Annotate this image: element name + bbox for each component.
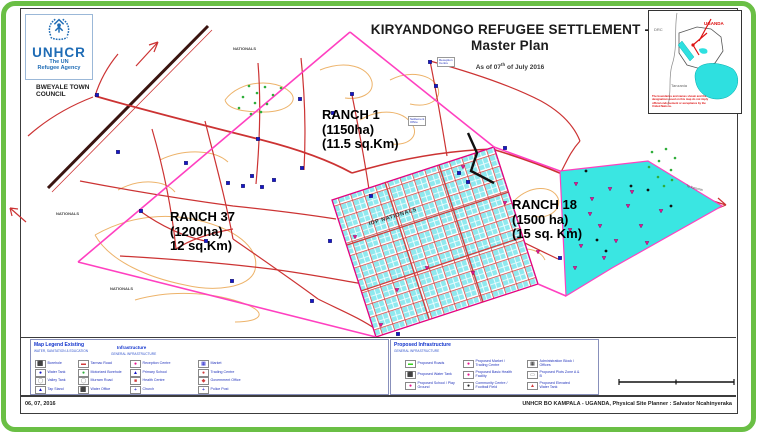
legend-existing-subtitle: Infrastructure bbox=[117, 345, 146, 350]
legend-symbol-icon: ● bbox=[130, 360, 141, 368]
inset-disclaimer: The boundaries and names shown and the d… bbox=[652, 95, 738, 108]
legend-symbol-icon: ▬ bbox=[78, 360, 89, 368]
legend-existing-subtitle-note: GENERAL INFRASTRUCTURE bbox=[111, 352, 156, 356]
footer-date: 06, 07, 2016 bbox=[25, 401, 56, 407]
ranch37-name: RANCH 37 bbox=[170, 210, 235, 225]
legend-item: ●Community Centre / Football Field bbox=[463, 382, 516, 390]
map-title-line2: Master Plan bbox=[370, 38, 650, 54]
legend-item-label: Health Centre bbox=[143, 379, 165, 383]
legend-item-label: Church bbox=[143, 388, 155, 392]
ranch37-area-km: 12 sq.Km) bbox=[170, 239, 235, 254]
legend-symbol-icon: + bbox=[198, 386, 209, 394]
legend-symbol-icon: ▲ bbox=[527, 382, 538, 390]
map-date-prefix: As of 07 bbox=[476, 64, 501, 71]
legend-item: ●Proposed Basic Health Facility bbox=[463, 371, 516, 379]
legend-symbol-icon: ▲ bbox=[35, 386, 46, 394]
legend-item-label: Motorized Borehole bbox=[91, 371, 122, 375]
legend-symbol-icon: ● bbox=[405, 382, 416, 390]
nationals-label: NATIONALS bbox=[110, 286, 133, 291]
legend-symbol-icon: ● bbox=[78, 369, 89, 377]
ranch37-area-ha: (1200ha) bbox=[170, 225, 235, 240]
map-title-line1: KIRYANDONGO REFUGEE SETTLEMENT - bbox=[370, 22, 650, 38]
footer-credit: UNHCR BO KAMPALA - UGANDA, Physical Site… bbox=[522, 401, 732, 407]
scale-bar bbox=[616, 376, 738, 388]
legend-item: ●Reception Centre bbox=[130, 360, 170, 368]
legend-item: ●Water Tank bbox=[35, 369, 65, 377]
logo-acronym: UNHCR bbox=[26, 46, 92, 59]
legend-item: ▭Proposed Plots Zone A & B bbox=[527, 371, 580, 379]
legend-item: ▲Proposed Elevated Water Tank bbox=[527, 382, 580, 390]
legend-symbol-icon: ▦ bbox=[198, 360, 209, 368]
legend-item-label: Proposed Basic Health Facility bbox=[476, 371, 516, 379]
ranch1-name: RANCH 1 bbox=[322, 108, 399, 123]
legend-item: ▦Administration Block / Offices bbox=[527, 360, 580, 368]
legend-item: ●Trading Centre bbox=[198, 369, 234, 377]
inset-drc-label: DRC bbox=[654, 27, 663, 32]
legend-symbol-icon: ● bbox=[463, 360, 474, 368]
legend-item-label: Proposed School / Play Ground bbox=[418, 382, 458, 390]
legend-item: ▲Primary School bbox=[130, 369, 167, 377]
legend-symbol-icon: ● bbox=[198, 369, 209, 377]
poi-callout: SettlementOffice bbox=[408, 116, 426, 126]
legend-item: ⬛Proposed Water Tank bbox=[405, 371, 452, 379]
nationals-label: NATIONALS bbox=[56, 211, 79, 216]
legend-symbol-icon: ⬛ bbox=[78, 386, 89, 394]
legend-proposed-box: Proposed Infrastructure GENERAL INFRASTR… bbox=[390, 339, 599, 395]
legend-symbol-icon: ▦ bbox=[527, 360, 538, 368]
ranch37-label: RANCH 37 (1200ha) 12 sq.Km) bbox=[170, 210, 235, 254]
legend-item: +Police Post bbox=[198, 386, 228, 394]
ranch1-label: RANCH 1 (1150ha) (11.5 sq.Km) bbox=[322, 108, 399, 152]
legend-symbol-icon: ▬ bbox=[405, 360, 416, 368]
legend-symbol-icon: ⬛ bbox=[405, 371, 416, 379]
legend-item: ●Proposed School / Play Ground bbox=[405, 382, 458, 390]
legend-symbol-icon: ◯ bbox=[35, 377, 46, 385]
legend-item-label: Water Tank bbox=[48, 371, 66, 375]
town-council-line2: COUNCIL bbox=[36, 91, 89, 98]
town-council-line1: BWEYALE TOWN bbox=[36, 84, 89, 91]
legend-symbol-icon: ■ bbox=[130, 377, 141, 385]
inset-tanzania-label: Tanzania bbox=[671, 83, 687, 88]
legend-item-label: Trading Centre bbox=[211, 371, 235, 375]
legend-symbol-icon: ● bbox=[463, 382, 474, 390]
legend-item-label: Murram Road bbox=[91, 379, 113, 383]
legend-existing-title: Map Legend Existing bbox=[34, 342, 84, 348]
legend-item: ●Motorized Borehole bbox=[78, 369, 122, 377]
legend-symbol-icon: ▲ bbox=[130, 369, 141, 377]
unhcr-emblem-icon bbox=[44, 15, 74, 41]
plot-grid-block bbox=[332, 147, 538, 337]
footer-bar: 06, 07, 2016 UNHCR BO KAMPALA - UGANDA, … bbox=[21, 396, 736, 413]
legend-item: +Church bbox=[130, 386, 154, 394]
legend-item-label: Community Centre / Football Field bbox=[476, 382, 516, 390]
legend-item: ▲Tap Stand bbox=[35, 386, 64, 394]
legend-item-label: Borehole bbox=[48, 362, 62, 366]
town-council-label: BWEYALE TOWN COUNCIL bbox=[36, 84, 89, 98]
unhcr-logo: UNHCR The UN Refugee Agency bbox=[25, 14, 93, 80]
inset-uganda-label: UGANDA bbox=[704, 21, 724, 26]
legend-item-label: Government Office bbox=[211, 379, 241, 383]
legend-item-label: Administration Block / Offices bbox=[540, 360, 580, 368]
legend-symbol-icon: ◆ bbox=[198, 377, 209, 385]
legend-existing-subnote: WATER, SANITATION & EDUCATION bbox=[34, 349, 88, 353]
ranch1-area-km: (11.5 sq.Km) bbox=[322, 137, 399, 152]
legend-proposed-title: Proposed Infrastructure bbox=[394, 342, 451, 348]
legend-symbol-icon: ▭ bbox=[527, 371, 538, 379]
legend-item-label: Market bbox=[211, 362, 222, 366]
legend-band-top-rule bbox=[21, 337, 736, 338]
legend-item: ◯Murram Road bbox=[78, 377, 112, 385]
legend-item: ⬛Borehole bbox=[35, 360, 62, 368]
legend-item: ■Health Centre bbox=[130, 377, 165, 385]
legend-symbol-icon: + bbox=[130, 386, 141, 394]
legend-item: ⬛Water Office bbox=[78, 386, 110, 394]
ranch18-area-km: (15 sq. Km) bbox=[512, 227, 582, 242]
legend-item-label: Reception Centre bbox=[143, 362, 171, 366]
legend-existing-box: Map Legend Existing WATER, SANITATION & … bbox=[30, 339, 389, 395]
ranch1-area-ha: (1150ha) bbox=[322, 123, 399, 138]
ranch18-name: RANCH 18 bbox=[512, 198, 582, 213]
ranch18-label: RANCH 18 (1500 ha) (15 sq. Km) bbox=[512, 198, 582, 242]
legend-item-label: Valley Tank bbox=[48, 379, 66, 383]
legend-item: ◯Valley Tank bbox=[35, 377, 66, 385]
nationals-label: NATIONALS bbox=[233, 46, 256, 51]
legend-item-label: Tap Stand bbox=[48, 388, 64, 392]
legend-item-label: Proposed Roads bbox=[418, 362, 445, 366]
legend-item-label: Water Office bbox=[91, 388, 111, 392]
legend-item: ◆Government Office bbox=[198, 377, 241, 385]
legend-item-label: Primary School bbox=[143, 371, 167, 375]
map-title-block: KIRYANDONGO REFUGEE SETTLEMENT - Master … bbox=[370, 22, 650, 71]
map-date-suffix: of July 2016 bbox=[505, 64, 544, 71]
legend-item-label: Proposed Water Tank bbox=[418, 373, 452, 377]
legend-item-label: Police Post bbox=[211, 388, 229, 392]
ranch18-zone bbox=[560, 161, 722, 296]
legend-symbol-icon: ◯ bbox=[78, 377, 89, 385]
legend-item-label: Proposed Plots Zone A & B bbox=[540, 371, 580, 379]
legend-symbol-icon: ⬛ bbox=[35, 360, 46, 368]
legend-item-label: Proposed Elevated Water Tank bbox=[540, 382, 580, 390]
legend-item: ▬Tarmac Road bbox=[78, 360, 112, 368]
legend-symbol-icon: ● bbox=[463, 371, 474, 379]
legend-item: ▬Proposed Roads bbox=[405, 360, 444, 368]
disclaimer-line4: United Nations. bbox=[652, 105, 738, 108]
legend-symbol-icon: ● bbox=[35, 369, 46, 377]
legend-proposed-subnote: GENERAL INFRASTRUCTURE bbox=[394, 349, 439, 353]
legend-item-label: Proposed Market / Trading Centre bbox=[476, 360, 516, 368]
legend-item: ●Proposed Market / Trading Centre bbox=[463, 360, 516, 368]
logo-tagline-2: Refugee Agency bbox=[26, 65, 92, 71]
ranch18-area-ha: (1500 ha) bbox=[512, 213, 582, 228]
legend-item-label: Tarmac Road bbox=[91, 362, 112, 366]
country-inset-map: UGANDA DRC Tanzania The boundaries and n… bbox=[648, 10, 742, 114]
legend-item: ▦Market bbox=[198, 360, 221, 368]
map-date: As of 07th of July 2016 bbox=[370, 62, 650, 71]
